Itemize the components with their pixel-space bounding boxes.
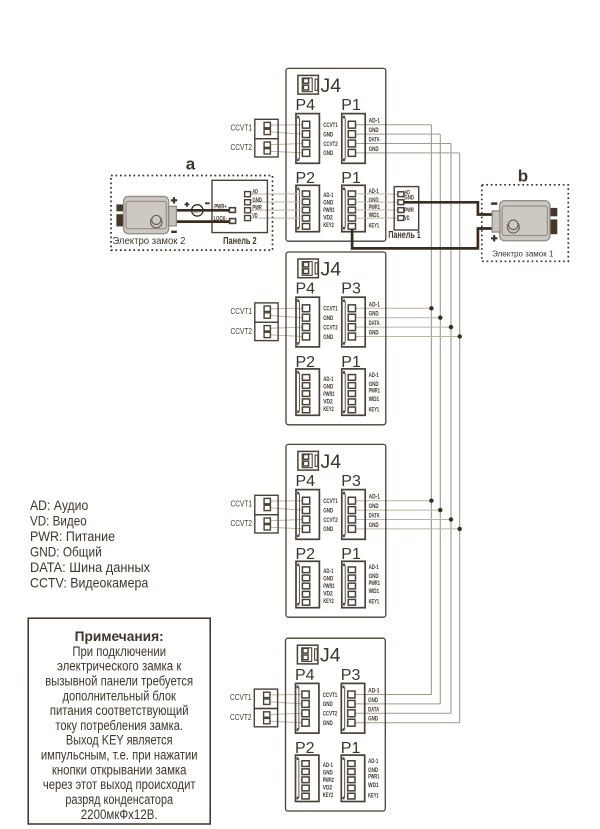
svg-text:CCVT1: CCVT1 xyxy=(323,306,338,313)
svg-text:GND: GND xyxy=(323,131,333,138)
svg-text:GND: GND xyxy=(369,522,379,529)
svg-text:току потребления замка.: току потребления замка. xyxy=(55,718,183,733)
svg-text:GND: GND xyxy=(323,701,333,708)
svg-text:PWR2: PWR2 xyxy=(323,391,335,398)
svg-text:AD-1: AD-1 xyxy=(369,494,381,501)
svg-text:разряд конденсатора: разряд конденсатора xyxy=(65,792,173,807)
svg-text:GND: GND xyxy=(323,150,333,157)
svg-text:DATA: DATA xyxy=(369,137,380,144)
svg-text:CCVT2: CCVT2 xyxy=(323,711,338,718)
svg-text:PWR1: PWR1 xyxy=(368,774,380,781)
svg-text:Выход KEY является: Выход KEY является xyxy=(66,733,173,748)
svg-text:через этот выход происходит: через этот выход происходит xyxy=(43,777,196,792)
svg-text:AD-1: AD-1 xyxy=(368,688,380,695)
svg-text:GND: GND xyxy=(323,507,333,514)
svg-text:WD1: WD1 xyxy=(368,782,379,789)
svg-text:b: b xyxy=(518,167,528,186)
svg-text:PWR: PWR xyxy=(252,205,262,212)
svg-text:GND: GND xyxy=(368,716,378,723)
svg-text:CCVT1: CCVT1 xyxy=(231,307,253,316)
svg-text:Примечания:: Примечания: xyxy=(75,629,164,644)
svg-text:GND: GND xyxy=(323,200,333,207)
svg-text:VD2: VD2 xyxy=(323,215,333,222)
svg-text:CCVT2: CCVT2 xyxy=(231,519,253,528)
svg-text:KEY2: KEY2 xyxy=(323,222,334,229)
svg-text:AD-1: AD-1 xyxy=(368,758,379,765)
svg-text:Электро замок 1: Электро замок 1 xyxy=(492,248,553,258)
svg-text:AD-1: AD-1 xyxy=(323,192,334,199)
svg-text:GND: GND xyxy=(369,330,379,337)
svg-text:VD2: VD2 xyxy=(323,591,333,598)
svg-text:KEY2: KEY2 xyxy=(323,598,334,605)
svg-text:KEY1: KEY1 xyxy=(369,599,380,606)
svg-text:VD2: VD2 xyxy=(323,785,333,792)
svg-text:12V: 12V xyxy=(193,208,202,213)
svg-text:AD-1: AD-1 xyxy=(369,301,381,308)
svg-text:Панель 2: Панель 2 xyxy=(223,236,257,247)
svg-text:GND: GND xyxy=(323,770,333,777)
svg-text:AD-1: AD-1 xyxy=(369,118,381,125)
svg-text:P4: P4 xyxy=(295,667,315,684)
svg-text:P4: P4 xyxy=(296,473,316,490)
svg-text:электрического замка к: электрического замка к xyxy=(57,659,181,674)
svg-text:AD-1: AD-1 xyxy=(323,762,334,769)
svg-text:P3: P3 xyxy=(341,667,361,684)
svg-text:DATA: DATA xyxy=(368,706,379,713)
svg-text:P3: P3 xyxy=(341,473,361,490)
svg-text:CCVT1: CCVT1 xyxy=(323,692,338,699)
svg-text:CCVT2: CCVT2 xyxy=(323,324,338,331)
svg-text:VD2: VD2 xyxy=(323,398,333,405)
svg-text:GND: GND xyxy=(323,334,333,341)
svg-text:DATA: Шина данных: DATA: Шина данных xyxy=(30,559,150,575)
svg-text:CCTV: Видеокамера: CCTV: Видеокамера xyxy=(30,575,148,591)
svg-text:CCVT2: CCVT2 xyxy=(231,327,253,336)
svg-text:a: a xyxy=(186,155,196,174)
svg-text:KEY1: KEY1 xyxy=(369,223,380,230)
svg-text:AD: AD xyxy=(252,189,258,196)
svg-text:CCVT1: CCVT1 xyxy=(231,499,253,508)
svg-text:PWR1: PWR1 xyxy=(369,580,381,587)
svg-text:AD-1: AD-1 xyxy=(323,376,334,383)
svg-text:P3: P3 xyxy=(341,281,361,298)
svg-text:WD1: WD1 xyxy=(369,588,380,595)
svg-text:Электро замок 2: Электро замок 2 xyxy=(112,236,185,247)
svg-text:DATA: DATA xyxy=(369,320,380,327)
svg-text:VD: VD xyxy=(404,215,409,222)
svg-text:Панель 1: Панель 1 xyxy=(388,230,421,241)
svg-text:PWR: Питание: PWR: Питание xyxy=(30,528,115,544)
svg-text:AD-1: AD-1 xyxy=(369,372,380,379)
svg-text:GND: GND xyxy=(369,311,379,318)
svg-text:импульсным, т.е. при нажатии: импульсным, т.е. при нажатии xyxy=(41,748,198,763)
svg-text:GND: GND xyxy=(404,195,414,202)
svg-text:KEY2: KEY2 xyxy=(323,792,334,799)
svg-text:KEY1: KEY1 xyxy=(368,793,379,800)
svg-text:AD-1: AD-1 xyxy=(369,564,380,571)
svg-text:GND: GND xyxy=(323,315,333,322)
svg-text:2200мкФх12В.: 2200мкФх12В. xyxy=(81,807,158,822)
svg-text:CCVT2: CCVT2 xyxy=(323,141,338,148)
svg-text:CCVT2: CCVT2 xyxy=(323,517,338,524)
svg-text:вызывной панели требуется: вызывной панели требуется xyxy=(45,673,193,688)
svg-text:CCVT1: CCVT1 xyxy=(231,123,253,132)
svg-text:PWR1: PWR1 xyxy=(369,387,381,394)
svg-text:GND: GND xyxy=(323,383,333,390)
svg-text:GND: GND xyxy=(368,697,378,704)
svg-text:J4: J4 xyxy=(320,645,341,667)
svg-text:J4: J4 xyxy=(321,75,342,97)
svg-text:CCVT1: CCVT1 xyxy=(230,693,252,702)
svg-text:GND: GND xyxy=(369,127,379,134)
svg-text:AD: Аудио: AD: Аудио xyxy=(30,497,88,513)
svg-text:J4: J4 xyxy=(321,259,342,281)
svg-text:AD-1: AD-1 xyxy=(323,568,334,575)
svg-text:GND: GND xyxy=(252,197,262,204)
svg-text:дополнительный блок: дополнительный блок xyxy=(63,688,176,703)
svg-text:GND: Общий: GND: Общий xyxy=(30,544,102,560)
svg-text:При подключении: При подключении xyxy=(72,644,166,659)
svg-text:GND: GND xyxy=(323,526,333,533)
svg-text:питания соответствующий: питания соответствующий xyxy=(50,703,189,718)
svg-text:KEY2: KEY2 xyxy=(323,406,334,413)
svg-text:CCVT2: CCVT2 xyxy=(231,143,253,152)
svg-text:PWR2: PWR2 xyxy=(323,207,335,214)
svg-text:GND: GND xyxy=(369,503,379,510)
svg-text:VD: VD xyxy=(252,212,257,219)
svg-text:P4: P4 xyxy=(296,281,316,298)
svg-text:PWR2: PWR2 xyxy=(323,583,335,590)
svg-text:GND: GND xyxy=(323,720,333,727)
svg-text:DATA: DATA xyxy=(369,513,380,520)
svg-text:P1: P1 xyxy=(341,97,361,114)
svg-text:CCVT1: CCVT1 xyxy=(323,122,338,129)
svg-text:кнопки открывании замка: кнопки открывании замка xyxy=(52,762,187,777)
svg-text:GND: GND xyxy=(369,146,379,153)
svg-text:J4: J4 xyxy=(321,451,342,473)
svg-text:CCVT1: CCVT1 xyxy=(323,498,338,505)
svg-text:GND: GND xyxy=(323,576,333,583)
svg-text:CCVT2: CCVT2 xyxy=(230,713,252,722)
svg-text:PWR: PWR xyxy=(404,207,414,214)
svg-text:WD1: WD1 xyxy=(369,396,380,403)
svg-text:PWR2: PWR2 xyxy=(323,777,335,784)
svg-text:KEY1: KEY1 xyxy=(369,406,380,413)
svg-text:P4: P4 xyxy=(296,97,316,114)
svg-text:VD: Видео: VD: Видео xyxy=(30,513,87,529)
